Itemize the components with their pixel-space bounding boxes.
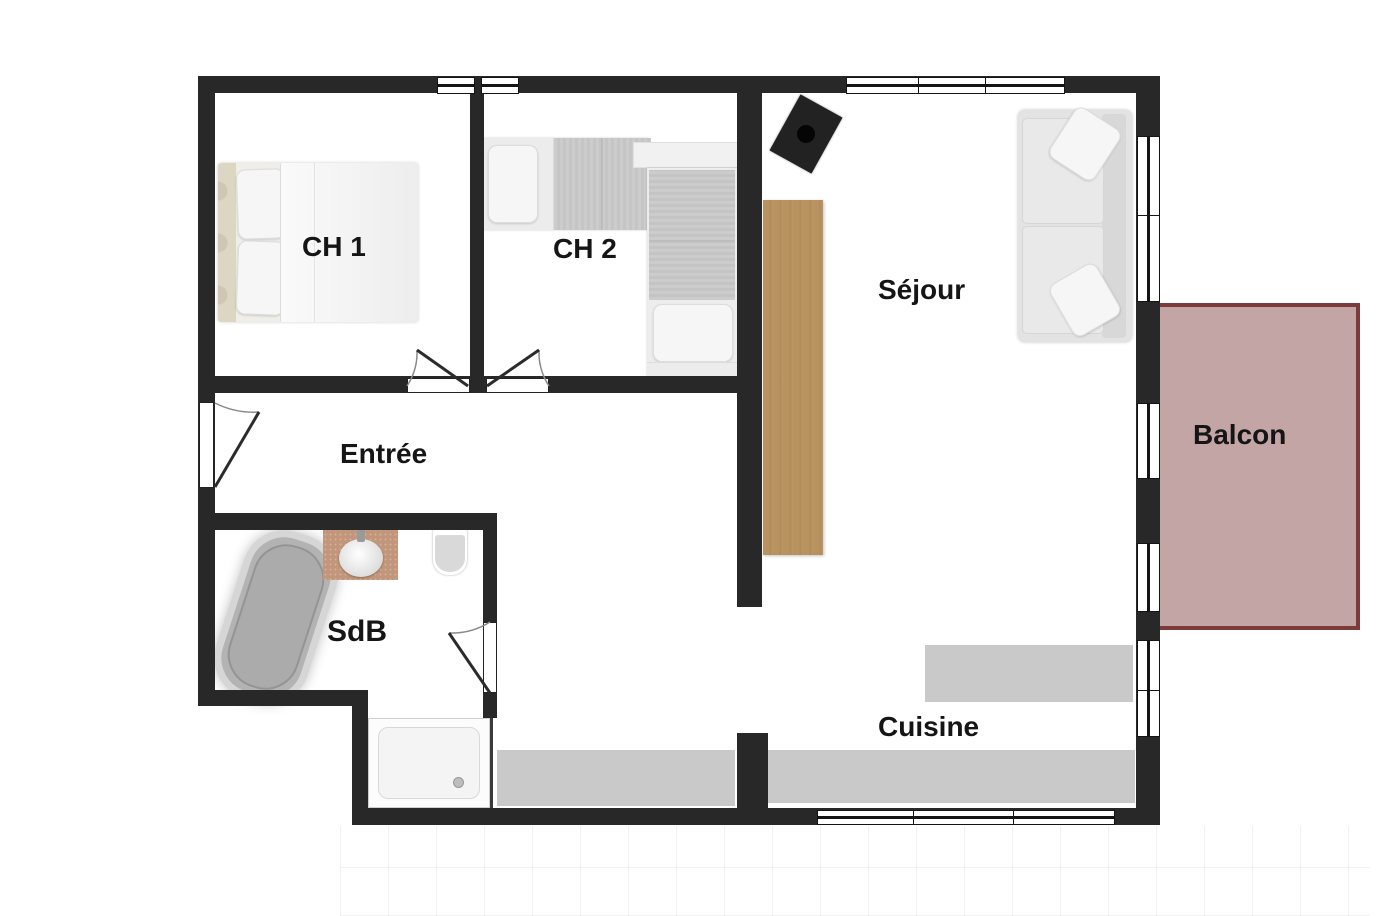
blanket-seam bbox=[649, 240, 735, 242]
wardrobe bbox=[763, 200, 823, 555]
shower-inner bbox=[378, 727, 480, 799]
headboard-shelf bbox=[633, 142, 739, 168]
shower-drain bbox=[453, 777, 464, 788]
wall-ch1-ch2 bbox=[470, 93, 484, 393]
background-grid bbox=[340, 826, 1370, 916]
window-right-pane bbox=[1137, 215, 1160, 302]
window-balcony-door bbox=[1137, 403, 1160, 479]
kitchen-counter-left bbox=[497, 750, 735, 806]
wall-step bbox=[352, 690, 368, 825]
sink-bowl bbox=[339, 539, 383, 577]
bathtub-inner bbox=[219, 535, 333, 698]
wall-sdb-right-upper bbox=[483, 513, 497, 622]
kitchen-island bbox=[925, 645, 1133, 702]
pillow bbox=[488, 145, 538, 223]
pillow bbox=[653, 304, 733, 362]
shower-tray bbox=[368, 718, 490, 808]
blanket-seam bbox=[601, 138, 603, 230]
window-ch2 bbox=[481, 77, 519, 94]
window-kitchen-pane bbox=[817, 810, 915, 825]
kitchen-counter-right bbox=[768, 750, 1135, 803]
pillow bbox=[236, 240, 287, 316]
door-opening-entrance bbox=[199, 402, 214, 488]
window-ch1 bbox=[437, 77, 475, 94]
wall-bedrooms-hall bbox=[198, 376, 762, 393]
sink-counter bbox=[323, 527, 398, 580]
wall-ch2-sejour bbox=[737, 93, 762, 607]
blanket bbox=[649, 170, 735, 300]
room-label-ch2: CH 2 bbox=[553, 233, 617, 265]
pillow bbox=[236, 168, 286, 240]
balcony-area bbox=[1150, 303, 1360, 630]
room-label-sdb: SdB bbox=[327, 615, 387, 649]
toilet bbox=[433, 527, 467, 575]
door-opening-ch1 bbox=[407, 378, 470, 393]
floor-plan: CH 1 CH 2 Séjour Entrée SdB Cuisine Balc… bbox=[0, 0, 1400, 916]
room-label-entree: Entrée bbox=[340, 438, 427, 470]
tv-unit bbox=[769, 94, 842, 173]
window-kitchen-pane bbox=[1013, 810, 1115, 825]
wall-kitchen-stub bbox=[737, 733, 768, 825]
wall-sdb-right-lower bbox=[483, 693, 497, 718]
headboard bbox=[218, 163, 236, 322]
window-right-pane bbox=[1137, 640, 1160, 692]
room-label-balcon: Balcon bbox=[1193, 419, 1286, 451]
sofa bbox=[1018, 110, 1132, 342]
single-bed-vertical bbox=[633, 142, 739, 385]
window-sejour-pane bbox=[918, 77, 987, 94]
wall-sdb-bottom bbox=[198, 690, 368, 706]
window-balcony-door bbox=[1137, 543, 1160, 612]
room-label-cuisine: Cuisine bbox=[878, 711, 979, 743]
toilet-seat bbox=[435, 535, 465, 572]
window-kitchen-pane bbox=[913, 810, 1015, 825]
window-right-pane bbox=[1137, 136, 1160, 217]
room-label-sejour: Séjour bbox=[878, 274, 965, 306]
speaker-circle bbox=[794, 122, 818, 146]
window-sejour-pane bbox=[846, 77, 920, 94]
room-label-ch1: CH 1 bbox=[302, 231, 366, 263]
single-bed-horizontal bbox=[483, 138, 650, 230]
faucet bbox=[357, 528, 365, 542]
window-sejour-pane bbox=[985, 77, 1065, 94]
door-opening-ch2 bbox=[486, 378, 549, 393]
shower-partition bbox=[490, 718, 493, 808]
door-opening-sdb bbox=[483, 622, 497, 693]
wall-sdb-top bbox=[198, 513, 497, 530]
window-right-pane bbox=[1137, 690, 1160, 737]
